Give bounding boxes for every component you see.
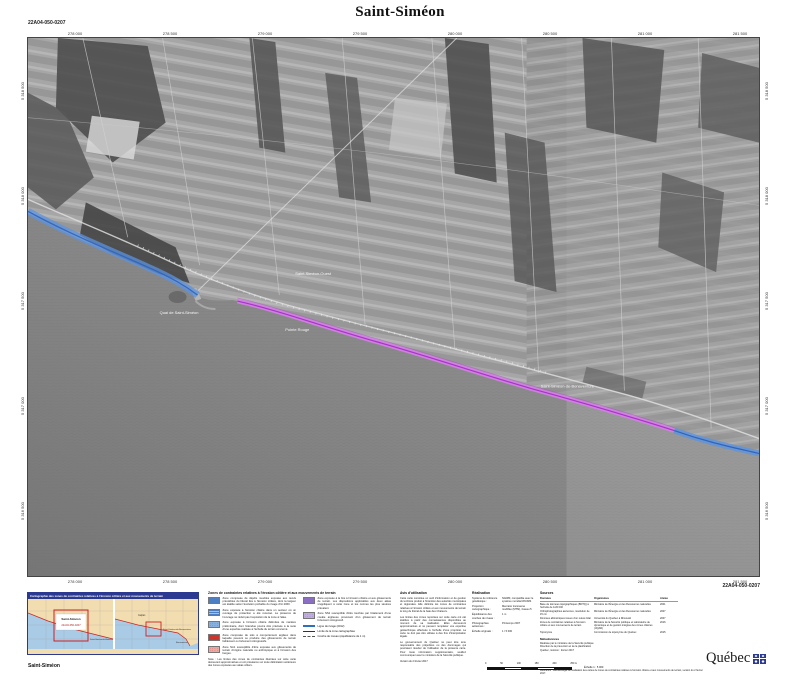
label-village: Saint-Siméon-de-Bonaventure xyxy=(541,384,595,389)
sources-title: Sources xyxy=(540,591,678,595)
quebec-flag-icon xyxy=(753,654,766,664)
legend-title: Zones de contraintes relatives à l'érosi… xyxy=(208,591,394,595)
legend-item: Zone composée de sols à comportement arg… xyxy=(208,634,296,644)
source-row: Données altimétriques issues d'un relevé… xyxy=(540,617,678,620)
locator-label-caplan: Caplan xyxy=(138,615,146,617)
erosion-protected-swatch xyxy=(208,609,220,616)
legend-symbol: Limite de la zone cartographiée xyxy=(303,630,391,633)
label-west-sector: Saint-Siméon-Ouest xyxy=(295,271,332,276)
locator-map: Saint-Siméon 22A04-050-0207 Saint-Siméon… xyxy=(28,599,198,649)
label-wharf: Quai de Saint-Siméon xyxy=(160,310,199,315)
usage-notice-paragraph: Le gouvernement du Québec ne peut être t… xyxy=(400,641,466,657)
source-row: Zones de contraintes relatives à l'érosi… xyxy=(540,621,678,630)
left-tick: 5 318 000 xyxy=(20,187,25,205)
reference-row: Photographies aériennes : Printemps 2007 xyxy=(472,622,534,628)
source-row: Toponymie Commission de toponymie du Qué… xyxy=(540,631,678,634)
legend-item: Zone exposée à l'érosion côtière délimit… xyxy=(208,621,296,631)
top-tick: 278 000 xyxy=(68,31,82,36)
scale-tick-labels: 0 50 100 150 200 250 m xyxy=(485,662,577,665)
top-tick: 279 500 xyxy=(353,31,367,36)
locator-sheet-name: Saint-Siméon xyxy=(61,617,80,621)
locator-label-st-simeon: Saint-Siméon-de-Bonaventure xyxy=(163,628,192,631)
combined-zone-swatch xyxy=(303,597,315,604)
shoreline-symbol xyxy=(303,625,315,627)
harbour-basin xyxy=(169,291,187,303)
reference-row: Projection cartographique : Mercator tra… xyxy=(472,605,534,611)
top-tick: 278 500 xyxy=(163,31,177,36)
study-limit-symbol xyxy=(303,631,315,632)
usage-notice-paragraph: Cette carte constitue un outil d'informa… xyxy=(400,597,466,613)
sheet-title: Saint-Siméon xyxy=(0,4,800,21)
erosion-preliminary-swatch xyxy=(208,621,220,628)
bottom-tick: 280 000 xyxy=(448,579,462,584)
contour-symbol xyxy=(303,636,315,637)
sources-header-row: Données Organismes Année xyxy=(540,597,678,602)
reference-row: Équidistance des courbes de niveau : 1 m xyxy=(472,613,534,619)
locator-panel: Cartographie des zones de contraintes re… xyxy=(27,592,199,655)
legend-column-left: Zone composée de dépôts meubles exposée … xyxy=(208,597,296,667)
source-row: Base de données topographiques (BDTQ) à … xyxy=(540,603,678,609)
combined-ns2-swatch xyxy=(303,612,315,619)
usage-notice-title: Avis d'utilisation xyxy=(400,591,466,595)
map-sheet: Saint-Siméon 22A04-050-0207 22A04-050-02… xyxy=(0,0,800,686)
bottom-tick: 281 500 xyxy=(733,579,747,584)
quebec-wordmark: Québec xyxy=(706,650,750,667)
right-tick: 5 317 000 xyxy=(764,397,769,415)
credits-line: Québec, révision : février 2017 xyxy=(540,649,678,652)
legend-symbol: Ligne de rivage (2012) xyxy=(303,625,391,628)
bottom-tick: 278 000 xyxy=(68,579,82,584)
right-tick: 5 318 000 xyxy=(764,187,769,205)
label-point: Pointe Rouge xyxy=(285,327,310,332)
legend: Zones de contraintes relatives à l'érosi… xyxy=(208,591,394,667)
legend-item: Zone composée de dépôts meubles exposée … xyxy=(208,597,296,607)
usage-notice: Avis d'utilisation Cette carte constitue… xyxy=(400,591,466,663)
usage-notice-paragraph: Les limites des zones reportées sur cett… xyxy=(400,616,466,639)
left-tick: 5 317 500 xyxy=(20,292,25,310)
legend-item: Zone NA1 susceptible d'être exposée aux … xyxy=(208,646,296,656)
top-tick: 279 000 xyxy=(258,31,272,36)
credits: Métadonnées Réalisée par le ministère de… xyxy=(540,637,678,651)
locator-label-bonaventure: Bonaventure xyxy=(176,641,189,644)
source-row: Orthophotographies aériennes, résolution… xyxy=(540,610,678,616)
top-tick: 281 500 xyxy=(733,31,747,36)
photo-seam-land xyxy=(567,38,759,576)
left-tick: 5 317 000 xyxy=(20,397,25,415)
top-tick: 280 000 xyxy=(448,31,462,36)
landslide-na1-swatch xyxy=(208,646,220,653)
credits-title: Métadonnées xyxy=(540,637,678,641)
bottom-tick: 279 000 xyxy=(258,579,272,584)
aerial-photo-map: Saint-Siméon-Ouest Quai de Saint-Siméon … xyxy=(27,37,760,577)
aerial-photo: Saint-Siméon-Ouest Quai de Saint-Siméon … xyxy=(28,38,759,576)
bottom-tick: 279 500 xyxy=(353,579,367,584)
top-tick: 280 500 xyxy=(543,31,557,36)
erosion-zone-swatch xyxy=(208,597,220,604)
right-tick: 5 318 500 xyxy=(764,82,769,100)
legend-item: Zone NS2 susceptible d'être touchée par … xyxy=(303,612,391,622)
quebec-logo: Québec xyxy=(706,650,766,667)
bottom-tick: 281 000 xyxy=(638,579,652,584)
legend-nota: Nota : Les limites des zones de contrain… xyxy=(208,658,296,667)
legend-item: Zone exposée à l'érosion côtière dans un… xyxy=(208,609,296,619)
left-tick: 5 318 500 xyxy=(20,82,25,100)
legend-item: Zone exposée à la fois à l'érosion côtiè… xyxy=(303,597,391,610)
sheet-code-top-left: 22A04-050-0207 xyxy=(28,20,66,26)
right-tick: 5 316 500 xyxy=(764,502,769,520)
reference-row: Échelle originale : 1 / 5 000 xyxy=(472,630,534,633)
landslide-zone-swatch xyxy=(208,634,220,641)
technical-references: Réalisation Système de référence géodési… xyxy=(472,591,534,635)
locator-caption: Saint-Siméon xyxy=(28,663,60,669)
legend-symbol: Courbe de niveau (équidistance de 1 m) xyxy=(303,635,391,638)
right-tick: 5 317 500 xyxy=(764,292,769,310)
left-tick: 5 316 500 xyxy=(20,502,25,520)
usage-notice-footer: Version du 2 février 2017 xyxy=(400,660,466,663)
top-tick: 281 000 xyxy=(638,31,652,36)
reference-row: Système de référence géodésique : NAD83,… xyxy=(472,597,534,603)
bottom-tick: 280 500 xyxy=(543,579,557,584)
legend-column-right: Zone exposée à la fois à l'érosion côtiè… xyxy=(303,597,391,667)
methodology-footnote: Référence : Méthodologie de réalisation … xyxy=(540,669,708,675)
bottom-tick: 278 500 xyxy=(163,579,177,584)
sources: Sources Données Organismes Année Base de… xyxy=(540,591,678,652)
locator-sheet-code: 22A04-050-0207 xyxy=(61,623,81,627)
technical-references-title: Réalisation xyxy=(472,591,534,595)
